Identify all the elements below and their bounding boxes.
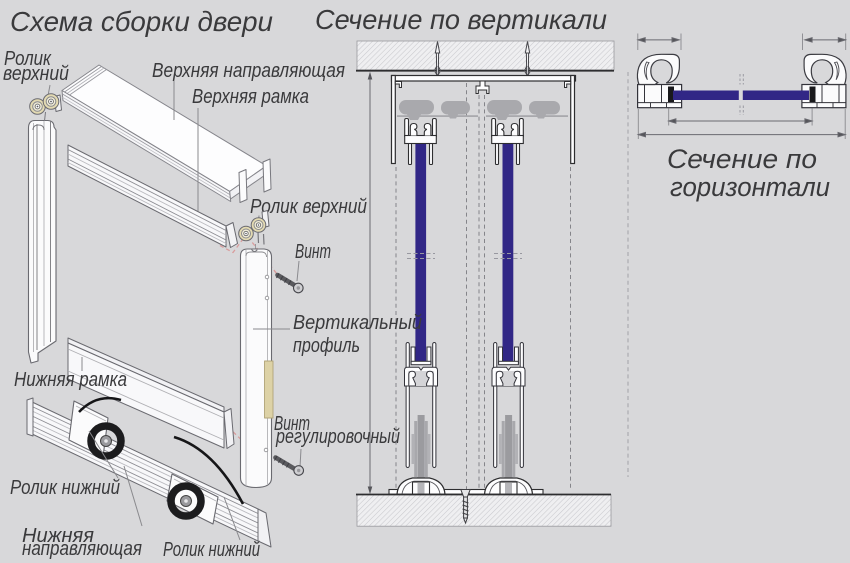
- svg-text:Верхняя направляющая: Верхняя направляющая: [152, 60, 345, 82]
- svg-text:Верхняя рамка: Верхняя рамка: [192, 86, 309, 108]
- svg-text:профиль: профиль: [293, 335, 360, 357]
- svg-text:Ролик нижний: Ролик нижний: [10, 477, 120, 499]
- svg-text:Нижняя рамка: Нижняя рамка: [14, 369, 127, 391]
- svg-text:регулировочный: регулировочный: [275, 426, 400, 448]
- svg-text:Сечение по: Сечение по: [667, 144, 817, 174]
- svg-text:горизонтали: горизонтали: [670, 172, 830, 202]
- svg-text:Вертикальный: Вертикальный: [293, 312, 422, 334]
- svg-text:направляющая: направляющая: [22, 538, 142, 560]
- svg-text:верхний: верхний: [3, 63, 69, 85]
- svg-text:Схема сборки двери: Схема сборки двери: [10, 6, 273, 37]
- svg-text:Винт: Винт: [295, 241, 331, 263]
- svg-text:Сечение по вертикали: Сечение по вертикали: [315, 4, 607, 35]
- svg-text:Ролик нижний: Ролик нижний: [163, 539, 260, 561]
